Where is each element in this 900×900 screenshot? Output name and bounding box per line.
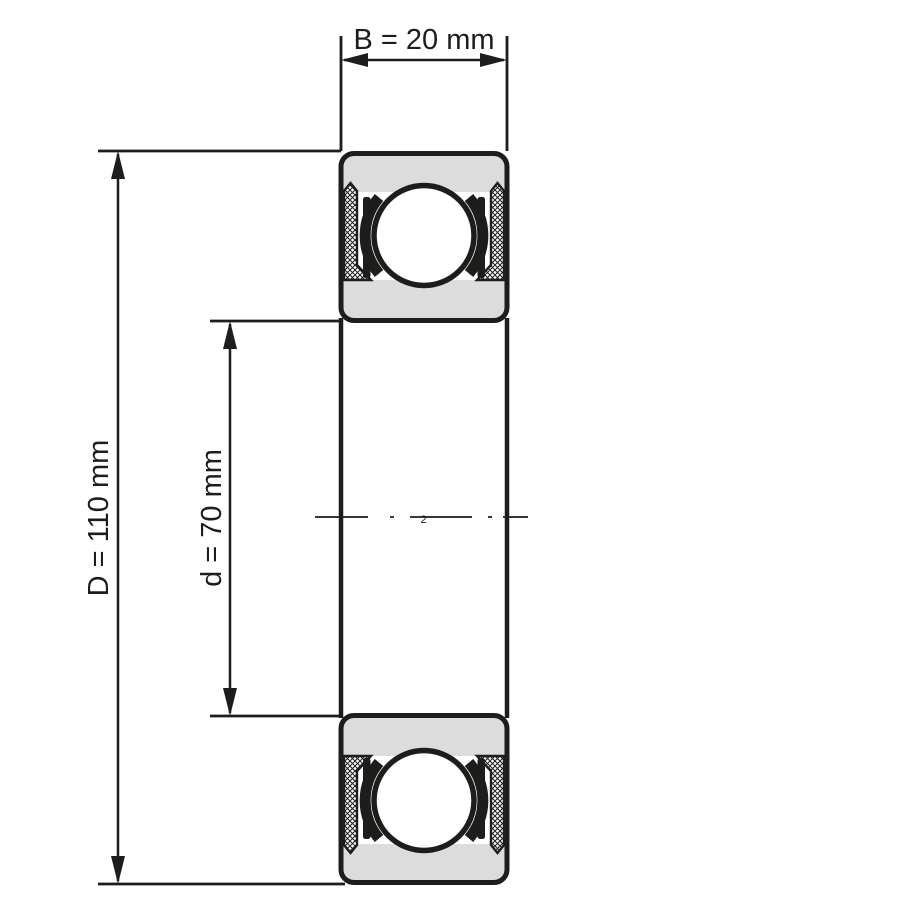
centerline: 2: [315, 514, 528, 526]
centerline-mark: 2: [420, 514, 426, 526]
arrowhead-top: [223, 321, 237, 349]
bearing-cross-section-drawing: 2 B = 20 mm D = 110 mm d = 70: [0, 0, 900, 900]
bore-diameter-label: d = 70 mm: [196, 449, 228, 587]
bearing-section-top: [341, 154, 507, 321]
arrowhead-bottom: [223, 688, 237, 716]
bearing-drawing-page: 2 B = 20 mm D = 110 mm d = 70: [0, 0, 900, 900]
arrowhead-top: [111, 151, 125, 179]
arrowhead-bottom: [111, 856, 125, 884]
outer-diameter-label: D = 110 mm: [83, 440, 115, 597]
width-dimension-label: B = 20 mm: [353, 24, 494, 56]
bearing-section-bottom: [341, 716, 507, 883]
dimension-width-B: B = 20 mm: [341, 24, 507, 151]
dimension-bore-diameter-d: d = 70 mm: [196, 321, 341, 716]
